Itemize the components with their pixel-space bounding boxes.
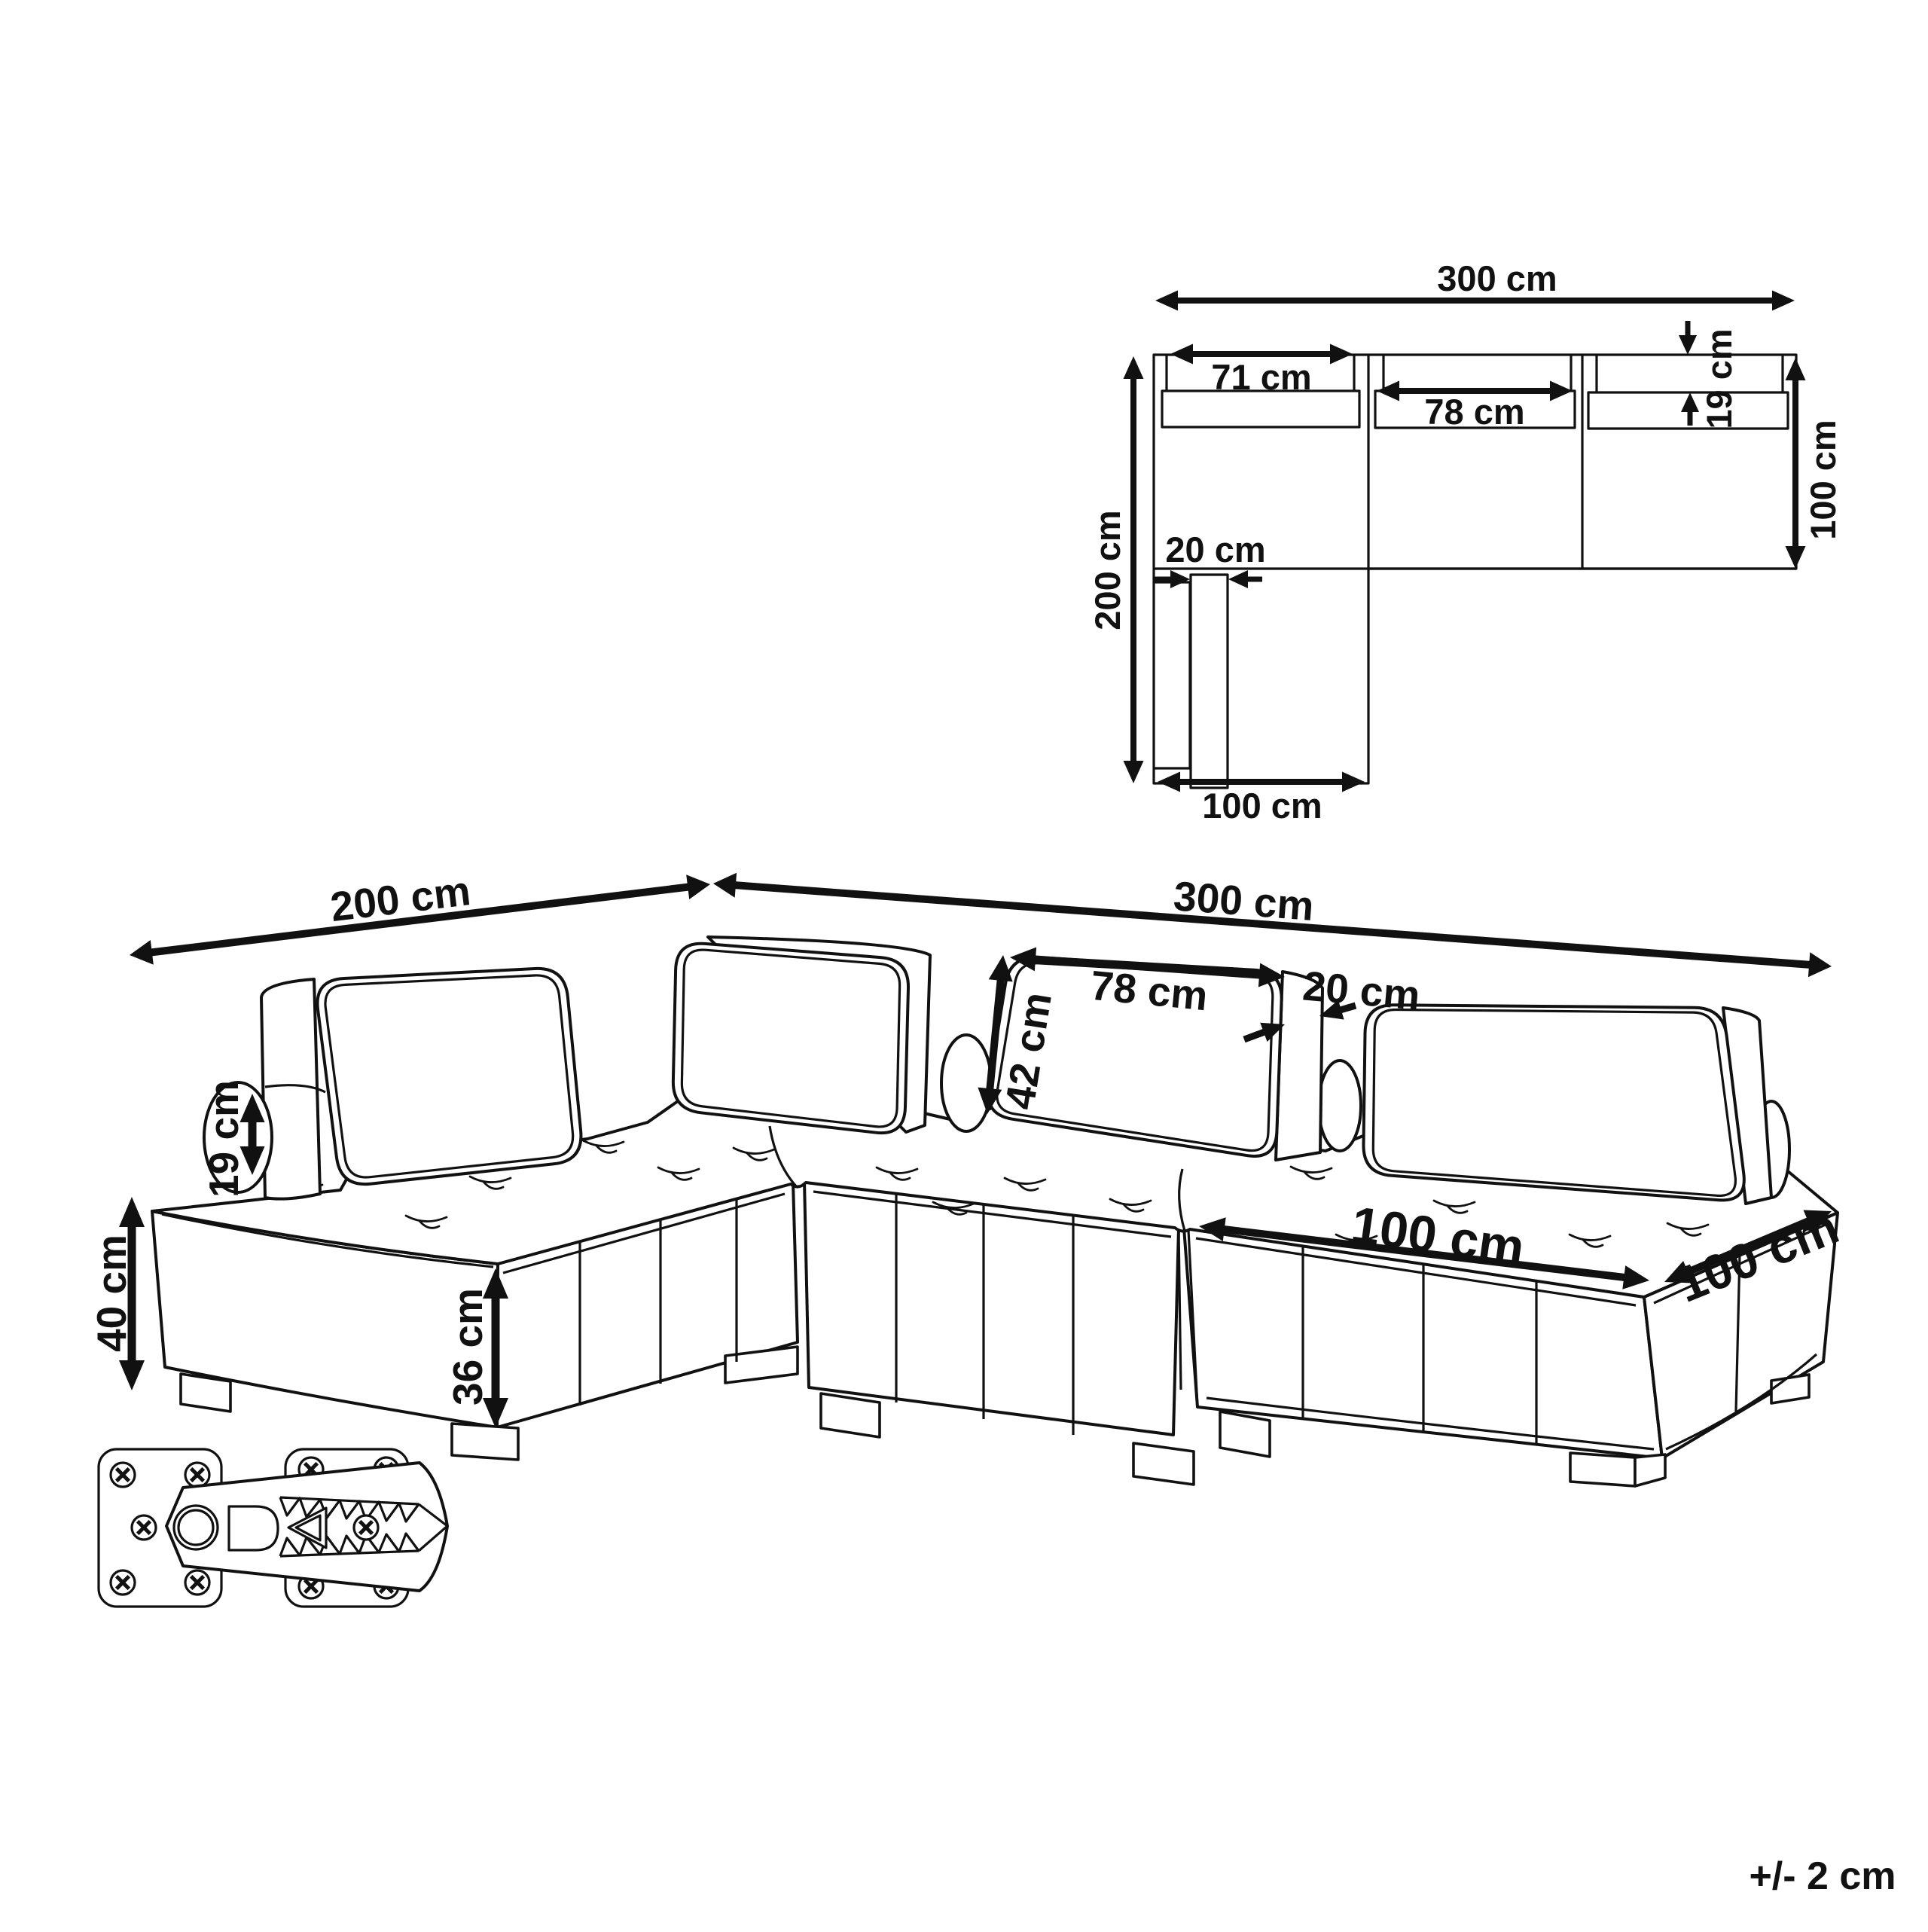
svg-text:78 cm: 78 cm xyxy=(1424,392,1524,432)
svg-text:36 cm: 36 cm xyxy=(444,1288,491,1406)
svg-text:100 cm: 100 cm xyxy=(1202,786,1322,826)
svg-text:300 cm: 300 cm xyxy=(1437,258,1557,298)
svg-text:200 cm: 200 cm xyxy=(1088,510,1127,630)
svg-text:71 cm: 71 cm xyxy=(1211,357,1311,397)
svg-text:40 cm: 40 cm xyxy=(88,1235,135,1352)
svg-text:19 cm: 19 cm xyxy=(200,1080,247,1198)
svg-text:100 cm: 100 cm xyxy=(1803,420,1843,539)
svg-text:20 cm: 20 cm xyxy=(1165,530,1265,569)
svg-text:19 cm: 19 cm xyxy=(1699,328,1739,429)
svg-text:+/- 2 cm: +/- 2 cm xyxy=(1749,1854,1896,1898)
